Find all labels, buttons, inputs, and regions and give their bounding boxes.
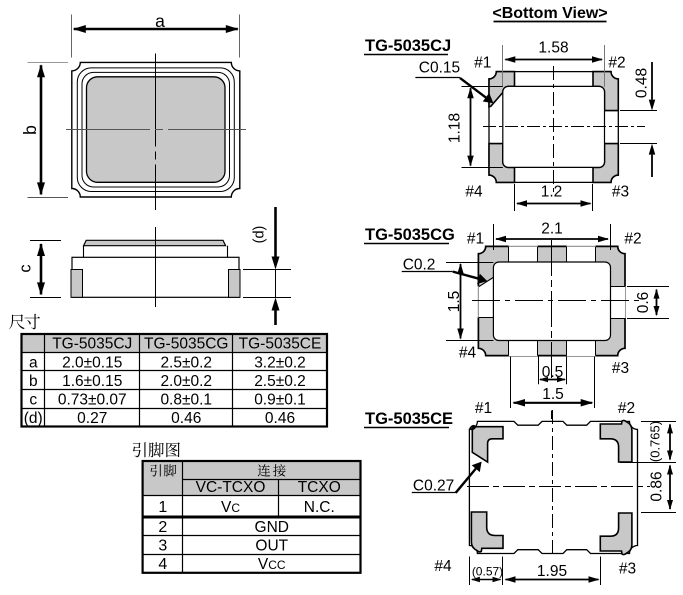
svg-text:TG-5035CJ: TG-5035CJ [52,336,132,353]
svg-text:#3: #3 [612,184,629,201]
svg-text:1.6±0.15: 1.6±0.15 [62,373,122,390]
svg-text:1.2: 1.2 [541,184,563,201]
svg-text:#2: #2 [618,400,635,417]
svg-text:(d): (d) [252,226,268,244]
svg-text:VC-TCXO: VC-TCXO [196,479,266,496]
svg-text:2: 2 [158,519,167,536]
svg-text:2.1: 2.1 [541,221,563,238]
svg-text:#2: #2 [624,230,641,247]
svg-text:2.0±0.2: 2.0±0.2 [160,373,212,390]
svg-text:1.18: 1.18 [447,113,464,143]
svg-text:#3: #3 [619,561,636,578]
svg-text:1.58: 1.58 [538,40,568,57]
svg-text:VC: VC [221,499,240,516]
svg-text:(0.765): (0.765) [648,421,663,462]
svg-text:(d): (d) [24,410,43,427]
svg-text:0.9±0.1: 0.9±0.1 [254,391,306,408]
svg-text:0.27: 0.27 [77,410,107,427]
svg-text:TG-5035CG: TG-5035CG [144,336,228,353]
svg-text:b: b [20,125,40,135]
svg-text:2.0±0.15: 2.0±0.15 [62,354,122,371]
svg-text:0.6: 0.6 [635,292,652,314]
svg-text:C0.15: C0.15 [419,60,460,77]
svg-text:TG-5035CJ: TG-5035CJ [365,37,451,55]
svg-text:1.95: 1.95 [537,563,567,580]
svg-text:0.86: 0.86 [649,471,666,501]
svg-text:a: a [155,11,165,31]
svg-text:1: 1 [158,499,167,516]
svg-text:#2: #2 [608,55,625,72]
svg-text:TG-5035CG: TG-5035CG [365,226,455,244]
svg-text:TCXO: TCXO [298,479,341,496]
svg-text:<Bottom View>: <Bottom View> [492,5,607,22]
svg-text:3.2±0.2: 3.2±0.2 [254,354,306,371]
svg-text:#4: #4 [465,184,483,201]
svg-text:c: c [29,391,37,408]
svg-text:GND: GND [255,519,289,536]
svg-text:c: c [17,264,35,272]
svg-text:0.46: 0.46 [265,410,295,427]
svg-text:2.5±0.2: 2.5±0.2 [160,354,212,371]
svg-text:C0.27: C0.27 [413,477,454,494]
svg-text:1.5: 1.5 [446,291,463,313]
svg-text:#4: #4 [459,345,477,362]
svg-text:0.8±0.1: 0.8±0.1 [160,391,212,408]
svg-text:#3: #3 [612,360,629,377]
svg-text:N.C.: N.C. [304,499,335,516]
svg-text:0.48: 0.48 [634,68,651,98]
svg-text:3: 3 [158,538,167,555]
svg-text:1.5: 1.5 [542,386,564,403]
svg-text:b: b [29,373,38,390]
svg-text:#1: #1 [475,400,492,417]
svg-text:2.5±0.2: 2.5±0.2 [254,373,306,390]
svg-text:#1: #1 [467,230,484,247]
svg-text:4: 4 [158,556,167,573]
svg-text:0.73±0.07: 0.73±0.07 [58,391,127,408]
svg-text:VCC: VCC [258,556,286,573]
svg-text:OUT: OUT [255,538,288,555]
svg-text:TG-5035CE: TG-5035CE [239,336,322,353]
svg-text:#4: #4 [434,558,452,575]
svg-text:a: a [29,354,38,371]
svg-text:0.46: 0.46 [171,410,201,427]
svg-text:(0.57): (0.57) [472,565,503,579]
svg-text:0.5: 0.5 [542,364,564,381]
svg-text:TG-5035CE: TG-5035CE [365,410,453,428]
svg-text:#1: #1 [474,55,491,72]
